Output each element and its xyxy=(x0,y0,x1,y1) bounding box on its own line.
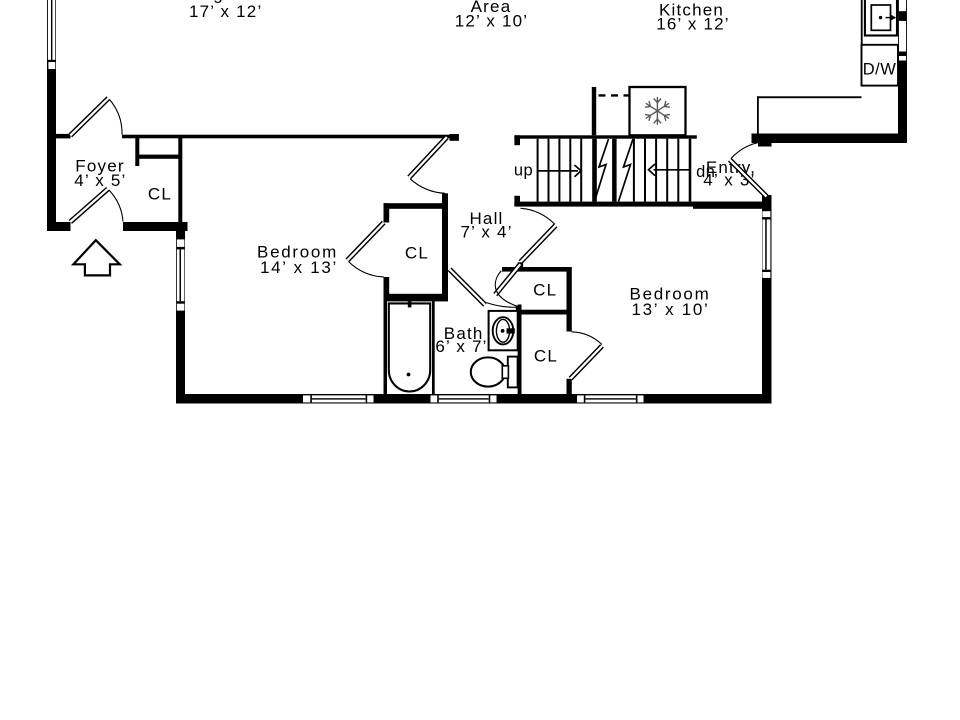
svg-text:CL: CL xyxy=(533,281,557,300)
svg-text:17’ x 12’: 17’ x 12’ xyxy=(189,2,263,21)
svg-text:14’ x 13’: 14’ x 13’ xyxy=(260,258,338,277)
svg-text:7’ x 4’: 7’ x 4’ xyxy=(461,223,513,242)
svg-text:16’ x 12’: 16’ x 12’ xyxy=(656,15,730,34)
svg-text:13’ x 10’: 13’ x 10’ xyxy=(632,300,710,319)
svg-text:up: up xyxy=(514,162,533,180)
svg-text:6’ x 7’: 6’ x 7’ xyxy=(435,337,487,356)
svg-text:4’ x 5’: 4’ x 5’ xyxy=(74,171,126,190)
svg-text:D/W: D/W xyxy=(863,61,897,79)
svg-text:CL: CL xyxy=(148,185,172,204)
svg-text:dn: dn xyxy=(696,163,715,181)
svg-text:CL: CL xyxy=(405,244,429,263)
svg-text:CL: CL xyxy=(534,347,558,366)
svg-text:12’ x 10’: 12’ x 10’ xyxy=(455,12,529,31)
